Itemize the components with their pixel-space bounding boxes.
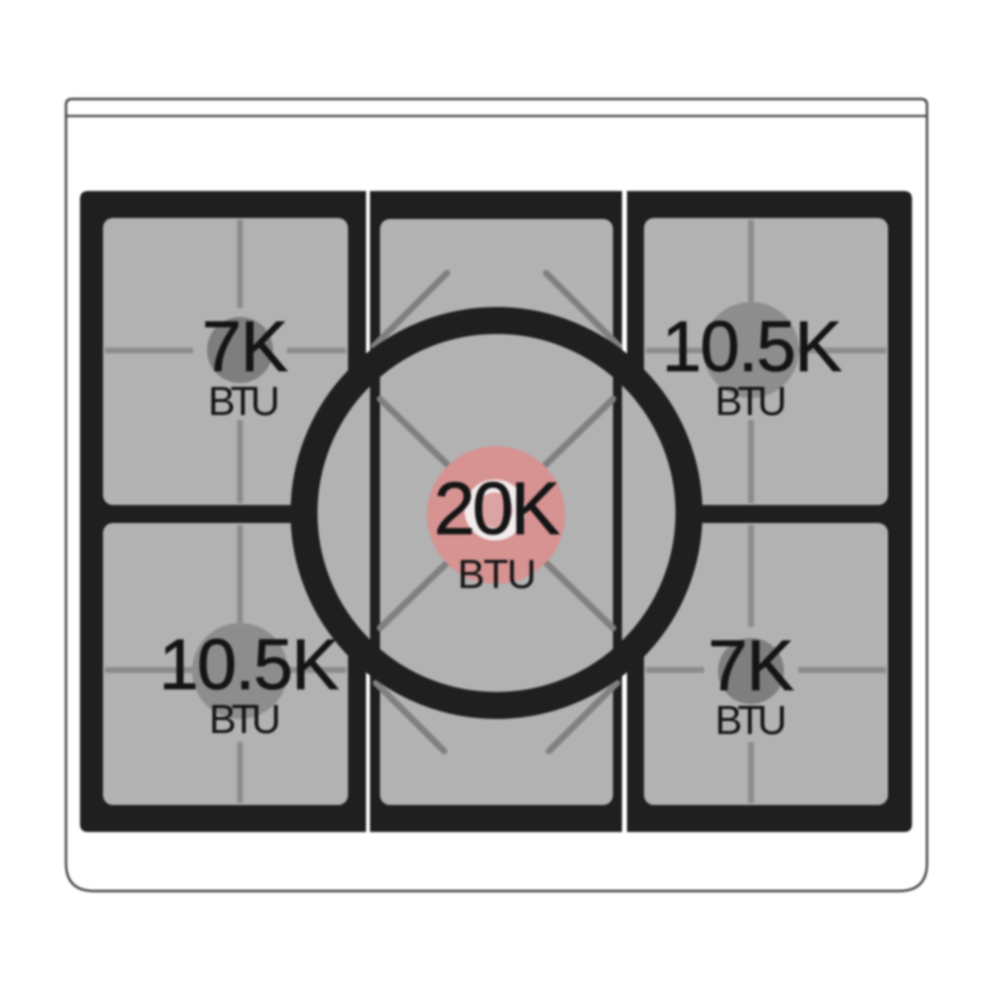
- svg-text:BTU: BTU: [715, 697, 787, 743]
- svg-text:BTU: BTU: [458, 551, 537, 597]
- svg-text:10.5K: 10.5K: [159, 626, 339, 705]
- svg-text:7K: 7K: [202, 308, 288, 387]
- svg-text:10.5K: 10.5K: [662, 308, 842, 387]
- svg-text:BTU: BTU: [715, 378, 787, 424]
- svg-text:20K: 20K: [434, 467, 560, 550]
- svg-text:BTU: BTU: [209, 696, 281, 742]
- svg-text:7K: 7K: [708, 627, 794, 706]
- svg-text:BTU: BTU: [208, 378, 280, 424]
